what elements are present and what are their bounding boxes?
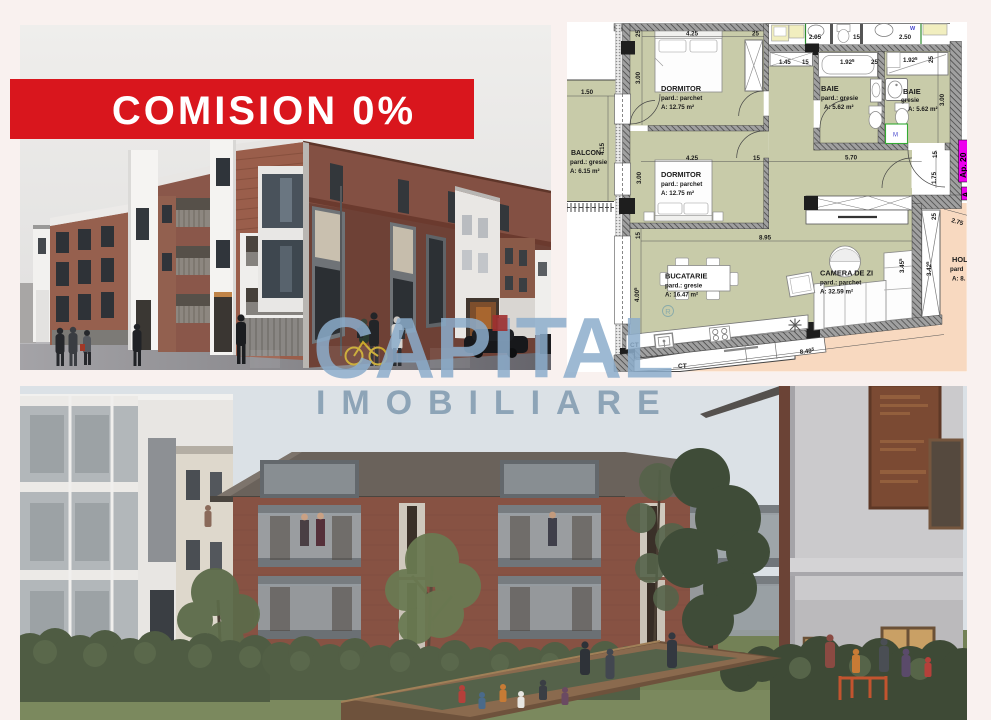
svg-text:4.25: 4.25 [686,155,699,162]
svg-text:1.75: 1.75 [931,171,938,184]
svg-text:DORMITOR: DORMITOR [661,84,702,93]
svg-text:25: 25 [931,213,938,220]
svg-text:1.45: 1.45 [779,60,791,66]
svg-text:HOL: HOL [952,255,967,264]
svg-text:CT: CT [678,363,687,370]
svg-text:pard.: gresie: pard.: gresie [821,95,859,102]
svg-text:2.05: 2.05 [809,34,822,41]
svg-text:Ap. 20: Ap. 20 [958,152,967,178]
svg-text:A: 6.15 m²: A: 6.15 m² [570,168,600,175]
svg-text:A: A [962,192,968,198]
svg-text:15: 15 [932,151,939,158]
svg-text:CAMERA DE ZI: CAMERA DE ZI [820,269,873,278]
svg-text:3.00: 3.00 [636,171,643,184]
svg-text:pard.: parchet: pard.: parchet [661,181,702,188]
svg-text:BAIE: BAIE [821,84,839,93]
svg-text:A: 5.62 m²: A: 5.62 m² [824,104,854,111]
svg-text:CT: CT [630,342,639,349]
svg-text:3.00: 3.00 [635,71,642,84]
svg-text:25: 25 [928,56,935,63]
svg-text:pard.: gresie: pard.: gresie [665,283,703,290]
svg-text:15: 15 [802,60,809,66]
svg-text:25: 25 [871,59,878,66]
svg-text:A: 12.75 m²: A: 12.75 m² [661,190,694,197]
svg-text:A: 12.75 m²: A: 12.75 m² [661,104,694,111]
svg-text:25: 25 [752,31,759,38]
svg-text:2.50: 2.50 [899,34,912,41]
svg-text:15: 15 [853,34,860,41]
svg-text:BALCON: BALCON [571,150,601,157]
svg-text:pard.: gresie: pard.: gresie [570,159,608,166]
svg-text:A: 16.47 m²: A: 16.47 m² [665,292,698,299]
svg-text:W: W [910,26,916,32]
svg-text:15: 15 [753,155,760,162]
svg-text:A: 8.: A: 8. [952,276,966,283]
svg-text:R: R [665,307,671,316]
svg-text:1.50: 1.50 [581,89,594,96]
svg-text:A: 32.59 m²: A: 32.59 m² [820,289,853,296]
svg-text:5.70: 5.70 [845,155,858,162]
svg-text:8.95: 8.95 [759,235,772,242]
svg-text:BUCATARIE: BUCATARIE [665,272,707,281]
svg-text:pard.: parchet: pard.: parchet [820,280,861,287]
svg-text:3.00: 3.00 [939,93,946,106]
svg-text:25: 25 [635,30,642,37]
svg-text:pard: pard [950,266,964,273]
svg-text:DORMITOR: DORMITOR [661,170,702,179]
svg-text:gresie: gresie [901,97,920,104]
svg-text:BAIE: BAIE [903,87,921,96]
svg-text:4.25: 4.25 [686,31,699,38]
svg-text:M: M [893,133,898,139]
svg-text:A: 5.62 m²: A: 5.62 m² [908,106,938,113]
svg-text:pard.: parchet: pard.: parchet [661,95,702,102]
svg-text:15: 15 [635,232,642,239]
